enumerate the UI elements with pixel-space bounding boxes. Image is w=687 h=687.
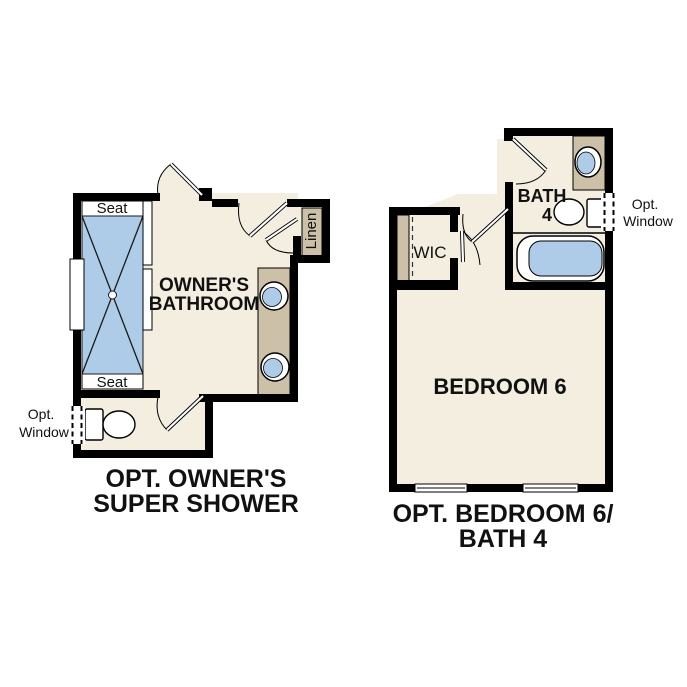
shower-drain	[109, 291, 117, 299]
bedroom-window-marker	[523, 484, 578, 492]
shower-glass-panel	[143, 201, 152, 265]
wall-segment	[450, 258, 458, 290]
bathtub-fixture	[517, 236, 604, 281]
linen-label: Linen	[303, 213, 320, 250]
bath4-label-line1: BATH	[518, 186, 567, 206]
wic-label: WIC	[413, 243, 446, 262]
bedroom-window-marker	[415, 484, 467, 492]
wall-segment	[450, 207, 458, 232]
wall-segment	[322, 199, 330, 263]
opt-window-label-left-line2: Window	[19, 424, 70, 440]
opt-window-label-right-line2: Window	[623, 213, 674, 229]
wall-segment	[389, 207, 397, 492]
sink-bowl	[263, 288, 282, 307]
floorplan-page: Seat Seat OWNER'S BATHROOM Linen Opt. Wi…	[0, 0, 687, 687]
wall-segment	[205, 394, 213, 458]
wall-segment	[290, 255, 298, 402]
wall-segment	[389, 207, 460, 215]
wall-segment	[212, 199, 238, 207]
wall-segment	[389, 280, 458, 290]
left-plan-caption-line2: SUPER SHOWER	[93, 490, 299, 518]
opt-window-marker-left	[69, 406, 85, 444]
owners-bathroom-label-line2: BATHROOM	[149, 294, 259, 315]
right-plan-caption-line2: BATH 4	[459, 525, 548, 553]
toilet-bowl	[103, 411, 135, 438]
floorplan-canvas: Seat Seat OWNER'S BATHROOM Linen Opt. Wi…	[0, 0, 687, 687]
window-glass	[69, 406, 85, 444]
bath4-label-line2: 4	[542, 205, 552, 225]
shower	[82, 201, 152, 389]
window-glass	[601, 193, 617, 231]
window-marker	[70, 259, 84, 330]
toilet-tank	[85, 409, 103, 440]
bedroom6-label: BEDROOM 6	[433, 374, 566, 399]
seat-top-label: Seat	[97, 200, 129, 217]
wall-segment	[505, 282, 613, 290]
wall-segment	[199, 394, 298, 402]
wall-segment	[73, 450, 213, 458]
opt-window-label-left-line1: Opt.	[28, 406, 54, 422]
seat-bottom-label: Seat	[97, 374, 129, 391]
wall-segment	[505, 128, 613, 136]
bathtub-basin	[529, 241, 602, 276]
toilet-fixture-owners	[85, 409, 135, 440]
wall-segment	[605, 128, 613, 492]
door-leaf	[462, 231, 463, 262]
hall-floor-wedge	[425, 139, 505, 215]
opt-window-marker-right	[601, 193, 617, 231]
sink-bowl	[264, 359, 283, 378]
wall-segment	[73, 390, 160, 398]
wic-shelf	[397, 215, 409, 281]
opt-window-label-right-line1: Opt.	[632, 196, 658, 212]
sink-bowl	[577, 152, 595, 174]
wall-segment	[505, 182, 513, 290]
owners-bathroom-label-line1: OWNER'S	[159, 275, 249, 296]
wall-segment	[504, 128, 513, 141]
left-plan-caption-line1: OPT. OWNER'S	[106, 465, 287, 493]
right-plan-caption-line1: OPT. BEDROOM 6/	[393, 500, 614, 528]
